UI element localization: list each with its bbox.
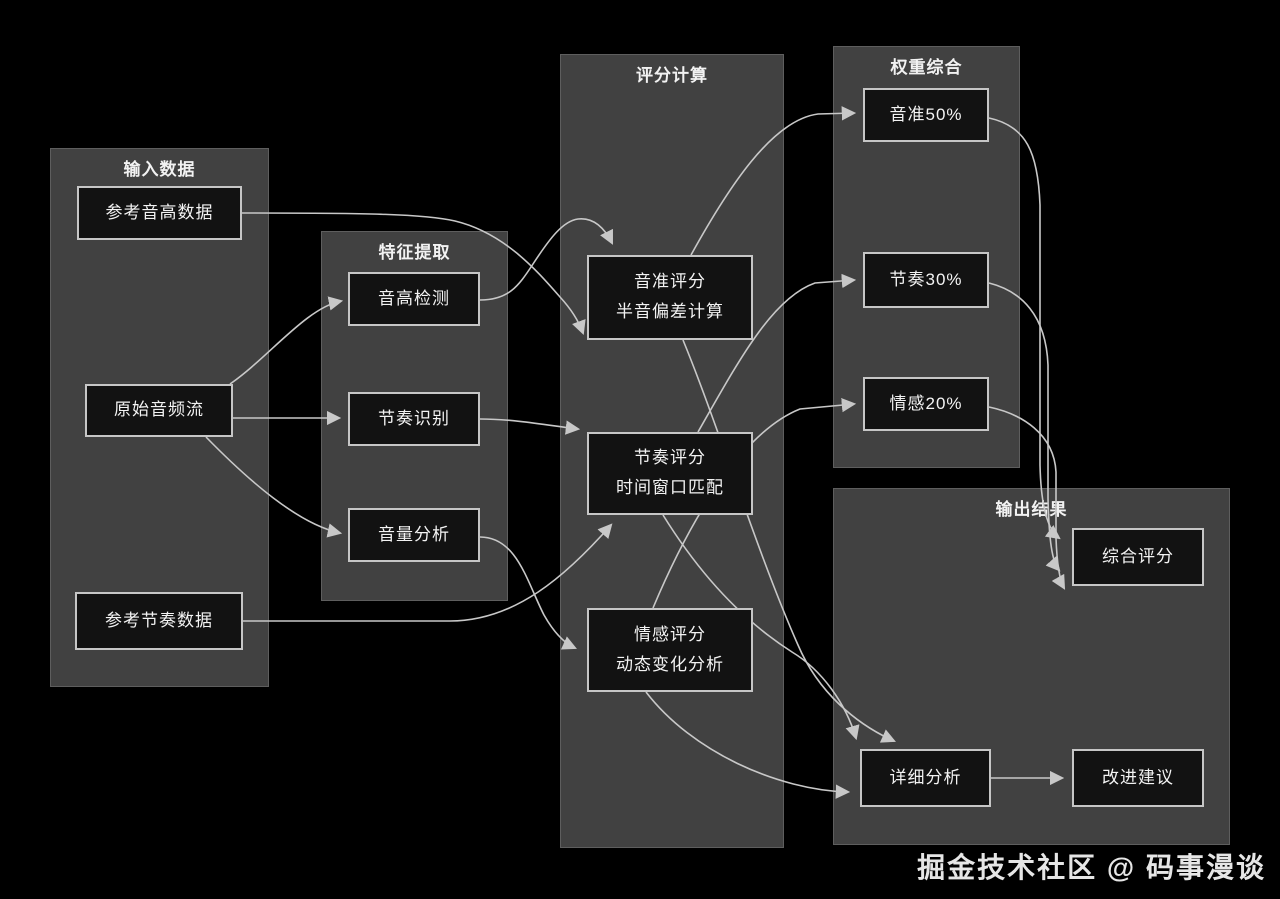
watermark: 掘金技术社区 @ 码事漫谈 bbox=[917, 846, 1266, 886]
node-label: 节奏30% bbox=[889, 271, 962, 290]
node-label: 参考音高数据 bbox=[106, 204, 214, 223]
node-ref_pitch: 参考音高数据 bbox=[77, 186, 242, 240]
node-rhythm_detect: 节奏识别 bbox=[348, 392, 480, 446]
node-label: 综合评分 bbox=[1102, 548, 1174, 567]
node-label: 节奏评分 bbox=[634, 449, 706, 468]
node-label: 音量分析 bbox=[378, 526, 450, 545]
node-final_score: 综合评分 bbox=[1072, 528, 1204, 586]
node-raw_audio: 原始音频流 bbox=[85, 384, 233, 437]
node-volume: 音量分析 bbox=[348, 508, 480, 562]
node-w_rhythm: 节奏30% bbox=[863, 252, 989, 308]
group-title-output: 输出结果 bbox=[834, 495, 1229, 520]
node-suggest: 改进建议 bbox=[1072, 749, 1204, 807]
node-ref_rhythm: 参考节奏数据 bbox=[75, 592, 243, 650]
node-label: 时间窗口匹配 bbox=[616, 479, 724, 498]
node-label: 详细分析 bbox=[890, 769, 962, 788]
node-label: 改进建议 bbox=[1102, 769, 1174, 788]
node-pitch_score: 音准评分半音偏差计算 bbox=[587, 255, 753, 340]
node-label: 音准评分 bbox=[634, 273, 706, 292]
node-label: 参考节奏数据 bbox=[105, 612, 213, 631]
node-label: 情感评分 bbox=[634, 626, 706, 645]
node-w_pitch: 音准50% bbox=[863, 88, 989, 142]
node-emotion_score: 情感评分动态变化分析 bbox=[587, 608, 753, 692]
node-label: 情感20% bbox=[889, 395, 962, 414]
node-label: 半音偏差计算 bbox=[616, 303, 724, 322]
node-w_emotion: 情感20% bbox=[863, 377, 989, 431]
node-label: 节奏识别 bbox=[378, 410, 450, 429]
node-label: 音准50% bbox=[889, 106, 962, 125]
group-title-weight: 权重综合 bbox=[834, 53, 1019, 78]
diagram-canvas: 输入数据特征提取评分计算权重综合输出结果 参考音高数据原始音频流参考节奏数据音高… bbox=[0, 0, 1280, 899]
node-detail: 详细分析 bbox=[860, 749, 991, 807]
node-label: 原始音频流 bbox=[114, 401, 204, 420]
node-pitch_detect: 音高检测 bbox=[348, 272, 480, 326]
group-title-input: 输入数据 bbox=[51, 155, 268, 180]
node-rhythm_score: 节奏评分时间窗口匹配 bbox=[587, 432, 753, 515]
group-title-score: 评分计算 bbox=[561, 61, 783, 86]
node-label: 动态变化分析 bbox=[616, 656, 724, 675]
group-title-feature: 特征提取 bbox=[322, 238, 507, 263]
node-label: 音高检测 bbox=[378, 290, 450, 309]
